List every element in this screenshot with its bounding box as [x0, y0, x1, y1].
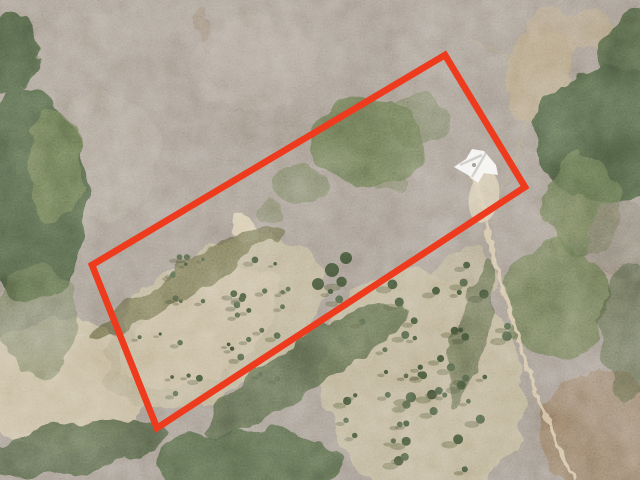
photo-grain	[0, 0, 640, 480]
satellite-photo	[0, 0, 640, 480]
satellite-map-view	[0, 0, 640, 480]
